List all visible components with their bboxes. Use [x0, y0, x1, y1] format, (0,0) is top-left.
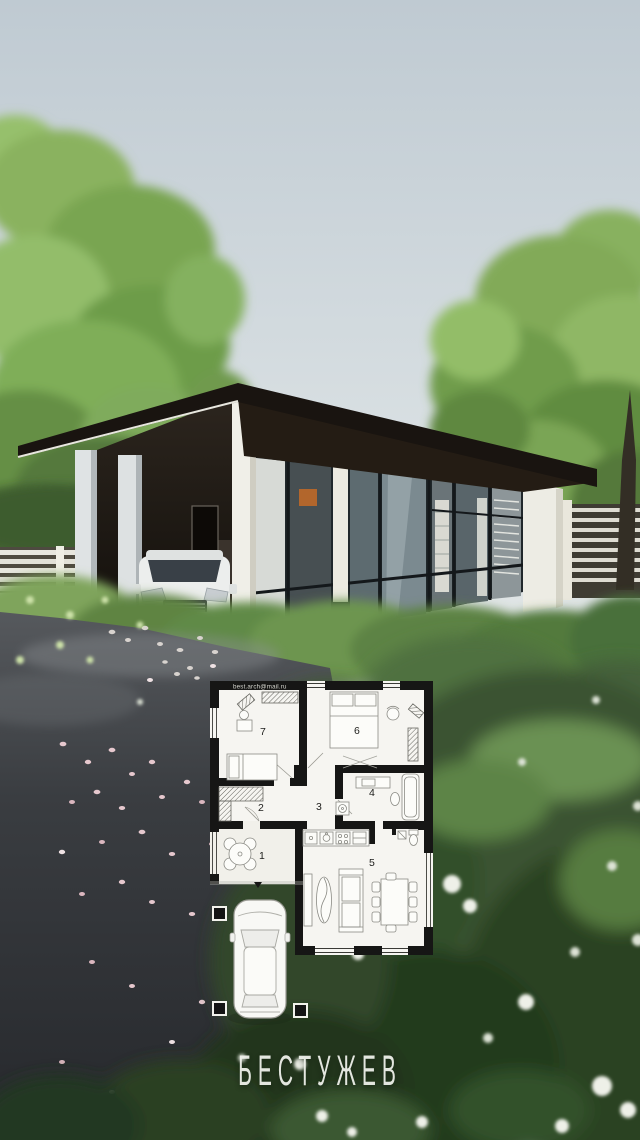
- watermark-email: best.arch@mail.ru: [233, 684, 287, 691]
- room-label-2: 2: [258, 802, 264, 814]
- room-label-7: 7: [260, 726, 266, 738]
- entry-step-marker: [254, 882, 262, 888]
- room-label-3: 3: [316, 801, 322, 813]
- room-label-1: 1: [259, 850, 265, 862]
- video-frame: 1 2 3 4 5 6 7 best.arch@mail.ru БЕСТУЖЕВ: [0, 0, 640, 1140]
- glass-post: [333, 452, 348, 602]
- room-label-6: 6: [354, 725, 360, 737]
- road-highlight: [20, 633, 280, 677]
- car-top-view: [228, 900, 292, 1025]
- pendant-light: [299, 489, 317, 506]
- kitchen-counter: [303, 830, 369, 846]
- room-label-4: 4: [369, 787, 375, 799]
- room-label-5: 5: [369, 857, 375, 869]
- floor-plan: 1 2 3 4 5 6 7 best.arch@mail.ru: [204, 678, 437, 1040]
